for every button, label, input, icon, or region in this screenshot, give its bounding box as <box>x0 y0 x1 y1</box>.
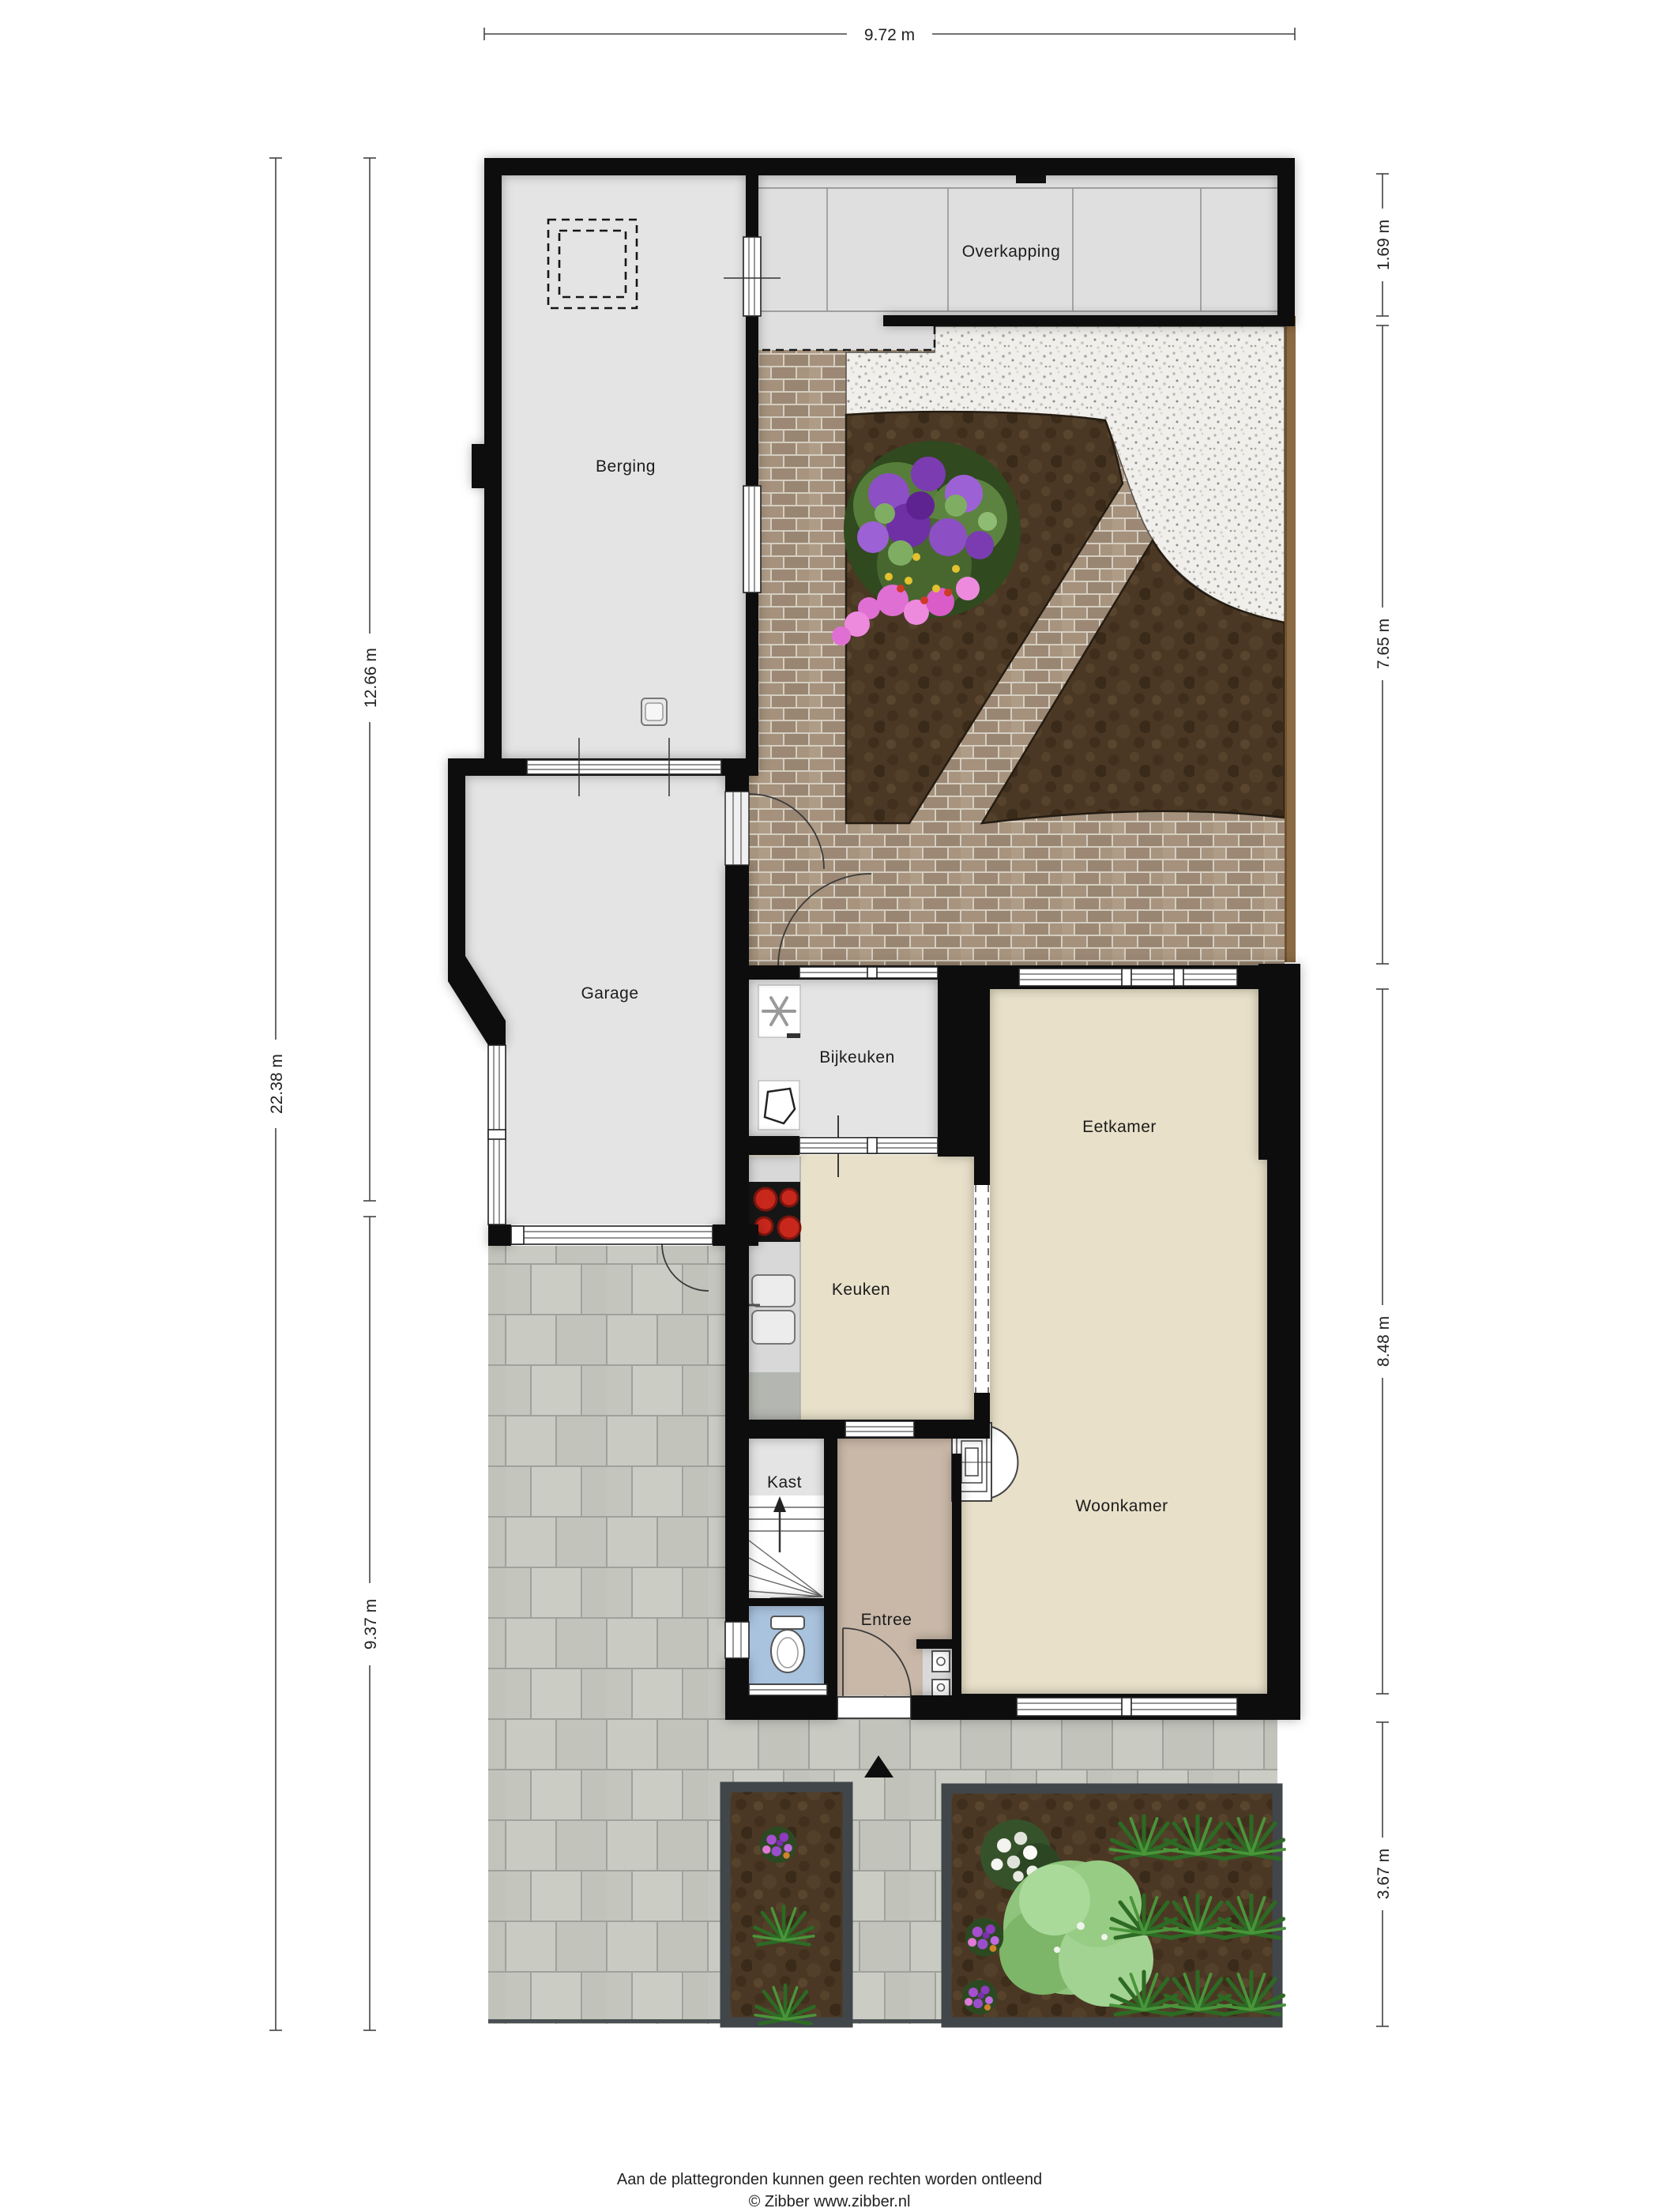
floorplan-canvas: Overkapping Berging Garage Bijkeuken Eet… <box>0 0 1659 2212</box>
label-entree: Entree <box>861 1611 912 1629</box>
back-garden <box>749 316 1296 965</box>
woonkamer-window <box>1017 1698 1237 1716</box>
dim-label-right-garden: 7.65 m <box>1375 619 1393 669</box>
meter-alcove <box>923 1649 952 1696</box>
garden-fence-edge <box>1285 316 1287 962</box>
dim-left-total: 22.38 m <box>263 158 288 2030</box>
dim-right-front: 3.67 m <box>1370 1722 1395 2026</box>
label-bijkeuken: Bijkeuken <box>819 1048 895 1066</box>
floorplan-page: Overkapping Berging Garage Bijkeuken Eet… <box>0 0 1659 2212</box>
dim-right-top: 1.69 m <box>1370 174 1395 316</box>
label-berging: Berging <box>596 457 656 476</box>
meter-box <box>932 1680 950 1696</box>
footer-copyright: © Zibber www.zibber.nl <box>749 2193 911 2210</box>
label-kast: Kast <box>767 1473 802 1492</box>
bijkeuken-keuken-window <box>799 1138 938 1153</box>
dim-left-lower: 9.37 m <box>357 1217 382 2030</box>
dim-top: 9.72 m <box>484 22 1295 46</box>
dim-right-house: 8.48 m <box>1370 989 1395 1694</box>
dim-label-right-house: 8.48 m <box>1375 1316 1393 1367</box>
dim-label-right-top: 1.69 m <box>1375 220 1393 270</box>
berging-sink <box>641 698 667 725</box>
footer: Aan de plattegronden kunnen geen rechten… <box>617 2171 1042 2210</box>
garage-side-window <box>488 1045 506 1224</box>
keuken-passage <box>974 1185 990 1393</box>
keuken-entree-doorway <box>845 1421 914 1437</box>
toilet-window <box>725 1622 749 1658</box>
floor-stairs <box>749 1495 824 1598</box>
eetkamer-window <box>1019 969 1237 986</box>
label-woonkamer: Woonkamer <box>1075 1497 1168 1515</box>
toilet-fixture <box>771 1616 804 1672</box>
label-overkapping: Overkapping <box>962 243 1061 261</box>
dim-label-right-front: 3.67 m <box>1375 1849 1393 1899</box>
dim-label-left-lower: 9.37 m <box>362 1599 380 1650</box>
bijkeuken-garden-window <box>799 967 938 978</box>
roof-beam <box>1016 175 1046 183</box>
garage-garden-door-opening <box>725 792 749 865</box>
label-garage: Garage <box>581 984 638 1003</box>
kitchen-counter <box>749 1157 800 1420</box>
toilet-low-wall <box>749 1684 827 1695</box>
meter-box <box>932 1651 950 1672</box>
floor-eetkamer-woonkamer <box>961 989 1267 1694</box>
footer-disclaimer: Aan de plattegronden kunnen geen rechten… <box>617 2171 1042 2188</box>
front-door-opening <box>837 1697 911 1718</box>
planter-bed-right <box>946 1789 1285 2022</box>
label-eetkamer: Eetkamer <box>1082 1118 1157 1136</box>
front-garden-beds <box>725 1787 1285 2024</box>
label-keuken: Keuken <box>832 1281 890 1299</box>
dim-right-garden: 7.65 m <box>1370 325 1395 964</box>
dim-label-left-upper: 12.66 m <box>362 648 380 708</box>
planter-bed-left <box>725 1787 848 2024</box>
dim-left-upper: 12.66 m <box>357 158 382 1201</box>
dim-label-top: 9.72 m <box>864 26 915 44</box>
berging-garden-window-lower <box>743 486 761 592</box>
dim-label-left-total: 22.38 m <box>268 1054 286 1114</box>
garage-door <box>511 1226 713 1244</box>
